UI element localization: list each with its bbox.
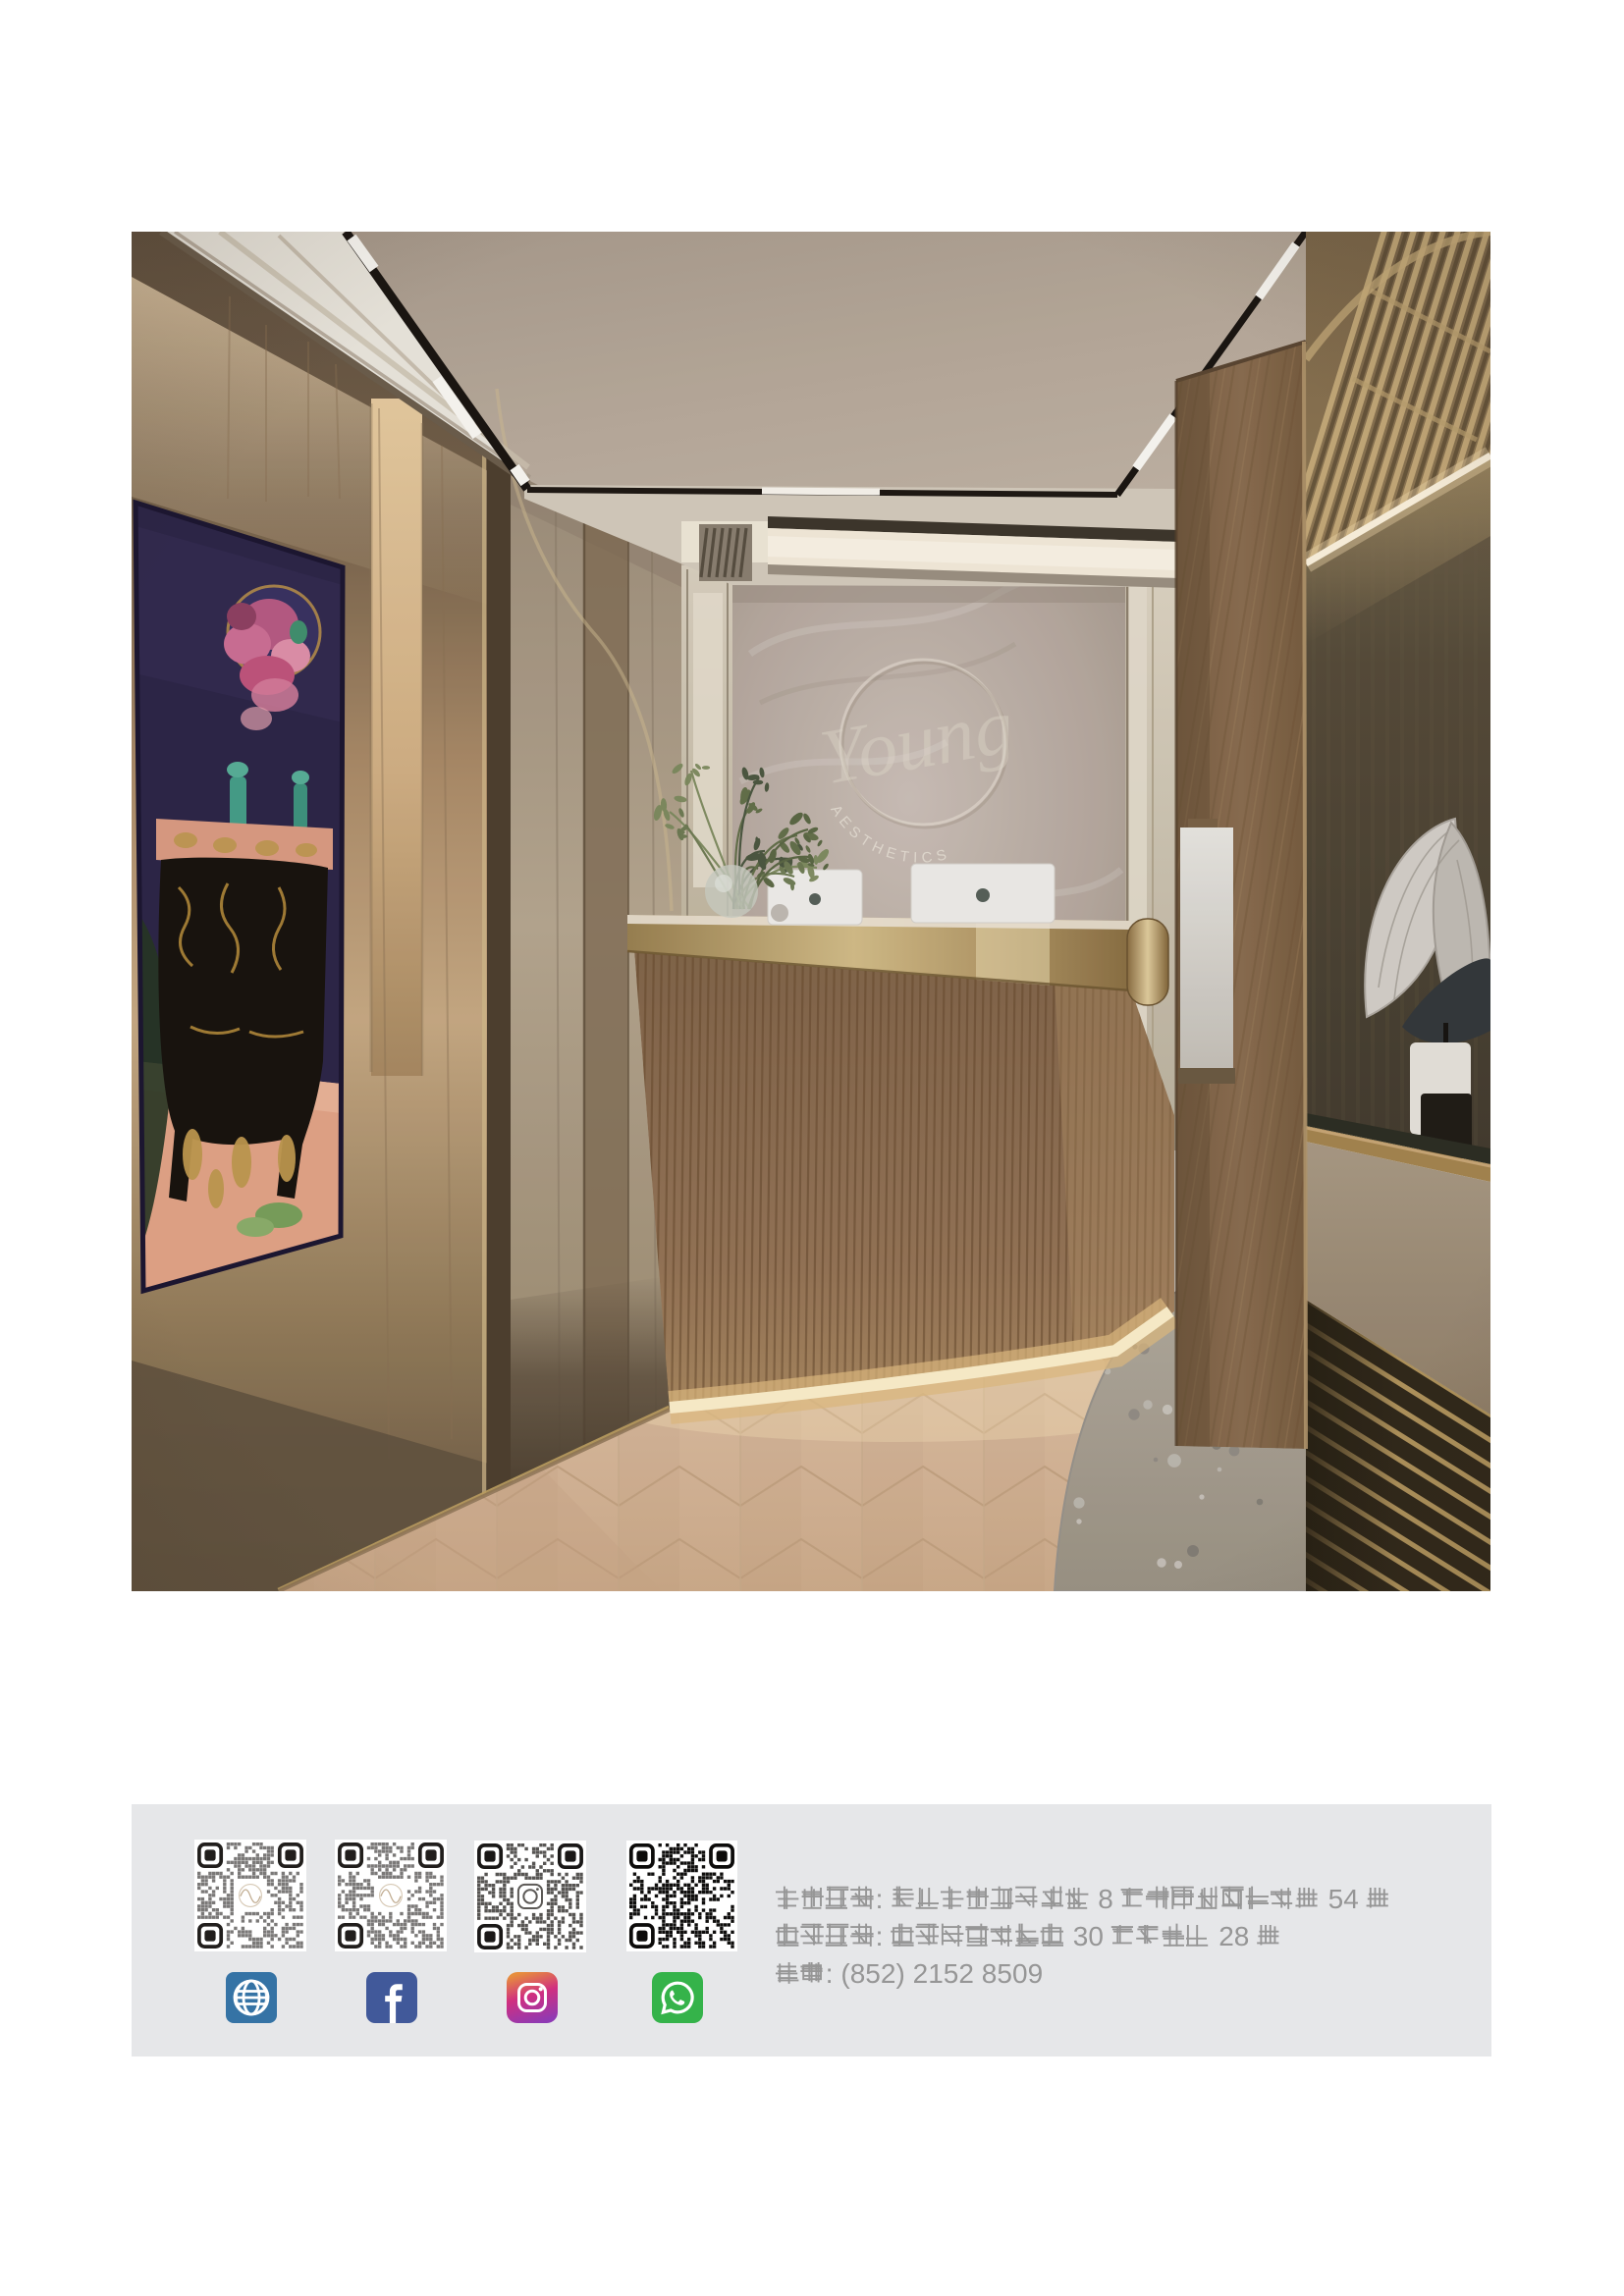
svg-text:2: 2 [1218,1921,1234,1951]
svg-text:2: 2 [881,1958,896,1989]
svg-text:8: 8 [982,1958,998,1989]
svg-text:2: 2 [913,1958,929,1989]
svg-text:9: 9 [1028,1958,1044,1989]
svg-text:0: 0 [1088,1921,1104,1951]
svg-text:0: 0 [1012,1958,1028,1989]
svg-text::: : [876,1921,884,1951]
svg-text:2: 2 [958,1958,974,1989]
svg-text:5: 5 [997,1958,1012,1989]
svg-text::: : [876,1884,884,1914]
svg-text:): ) [896,1958,905,1989]
svg-text:1: 1 [928,1958,944,1989]
svg-text:8: 8 [850,1958,866,1989]
svg-text:8: 8 [1234,1921,1250,1951]
svg-text::: : [826,1958,834,1989]
svg-text:5: 5 [944,1958,959,1989]
svg-text:3: 3 [1073,1921,1089,1951]
svg-text:5: 5 [1328,1884,1344,1914]
svg-text:5: 5 [865,1958,881,1989]
svg-text:8: 8 [1098,1884,1113,1914]
svg-text:4: 4 [1343,1884,1359,1914]
